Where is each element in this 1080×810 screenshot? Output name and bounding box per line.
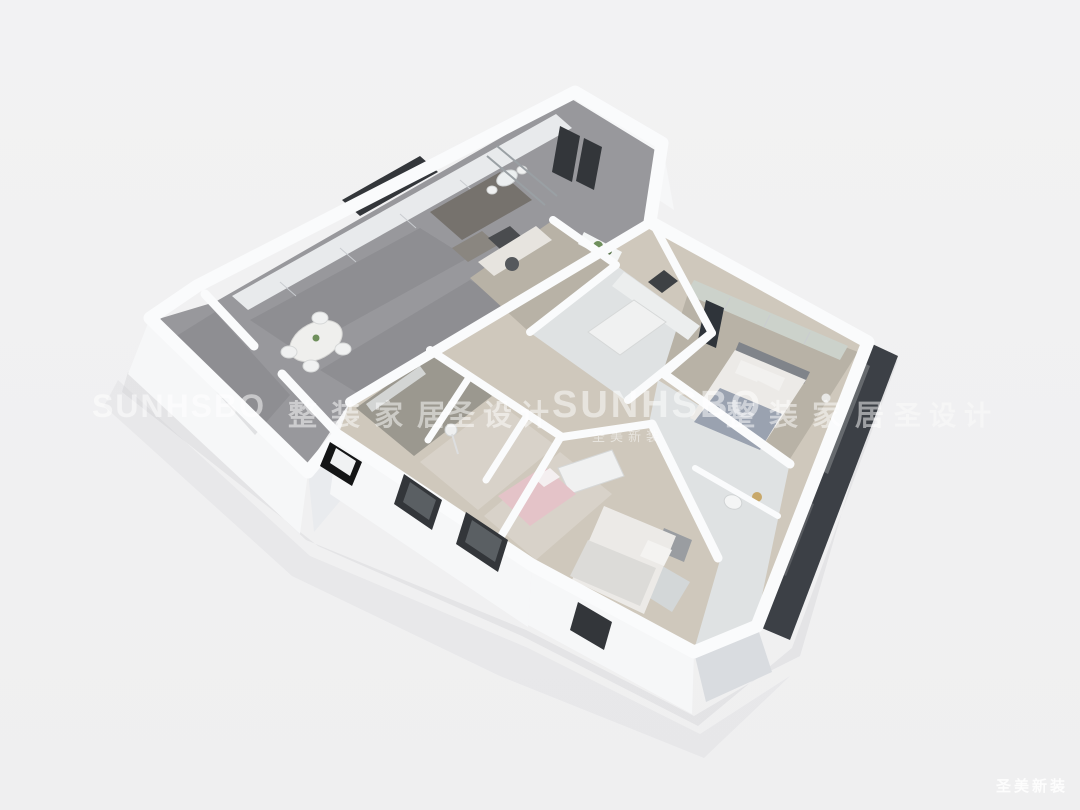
- study-chair: [505, 257, 519, 271]
- watermark-corner: 圣美新装: [996, 775, 1068, 796]
- floorplan-render: SUNHSBO 整装家居 圣设计 SUNHSBO 圣美新装 整装家居 圣设计 圣…: [0, 0, 1080, 810]
- watermark-text: 整装家居: [726, 392, 898, 434]
- watermark-text: 圣设计: [894, 394, 999, 433]
- table-plant: [313, 335, 320, 342]
- watermark-subtext: 圣美新装: [592, 426, 664, 445]
- watermark-text: 整装家居: [288, 392, 460, 434]
- watermark-text: 圣设计: [446, 392, 557, 434]
- watermark-logo: SUNHSBO: [92, 388, 266, 425]
